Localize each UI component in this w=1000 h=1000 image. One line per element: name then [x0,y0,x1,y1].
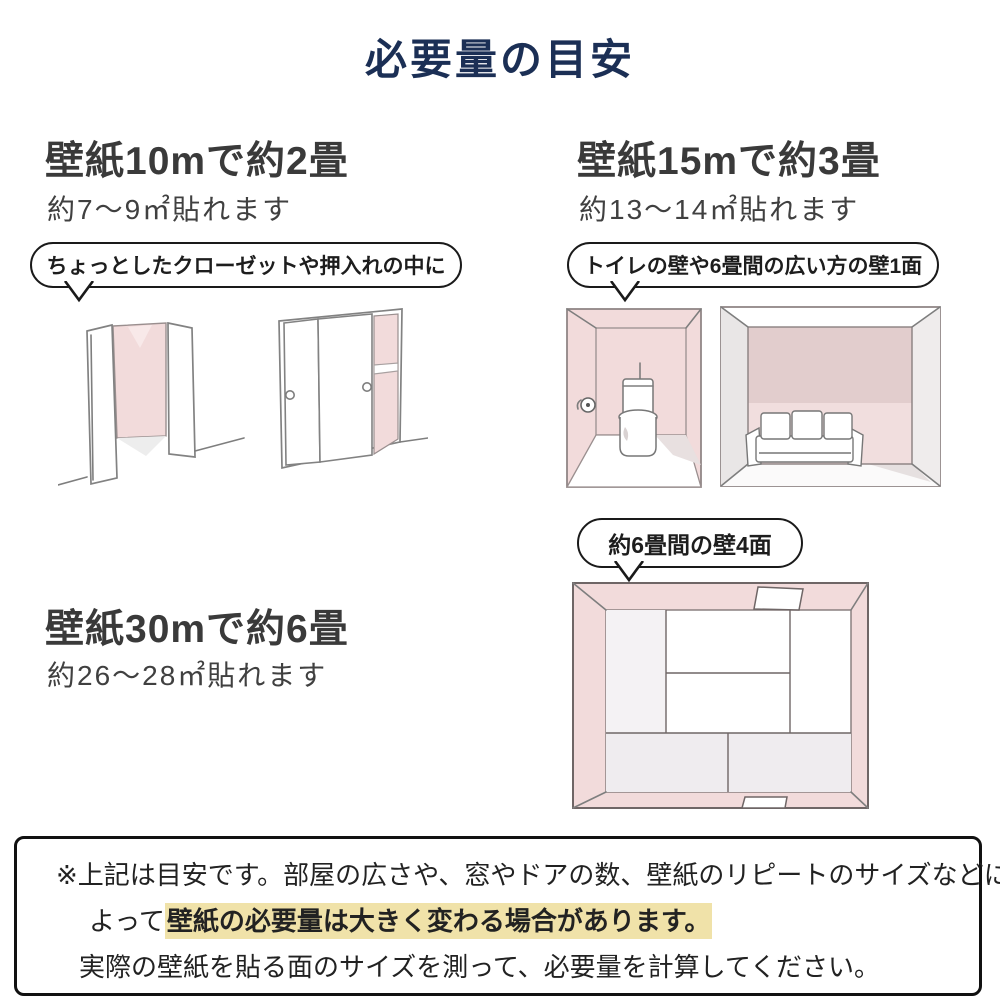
speech-bubble-room4: 約6畳間の壁4面 [577,518,803,568]
notice-line-2: よって壁紙の必要量は大きく変わる場合があります。 [56,898,949,944]
notice-line-3: 実際の壁紙を貼る面のサイズを測って、必要量を計算してください。 [56,944,949,990]
speech-bubble-closet-label: ちょっとしたクローゼットや押入れの中に [47,250,446,280]
page-title: 必要量の目安 [0,26,1000,87]
notice-line-1: ※上記は目安です。部屋の広さや、窓やドアの数、壁紙のリピートのサイズなどに [56,852,949,898]
wallpaper-quantity-guide: 必要量の目安 壁紙10mで約2畳 約7〜9㎡貼れます 壁紙15mで約3畳 約13… [0,0,1000,1000]
subtext-10m: 約7〜9㎡貼れます [47,188,292,228]
tatami-room-illustration [570,580,874,815]
notice-box: ※上記は目安です。部屋の広さや、窓やドアの数、壁紙のリピートのサイズなどに よっ… [14,836,982,996]
sliding-closet-illustration [248,303,428,485]
sofa-room-illustration [718,303,946,493]
heading-30m: 壁紙30mで約6畳 [45,598,349,654]
speech-bubble-tail [62,281,98,305]
open-closet-illustration [58,308,253,493]
heading-15m: 壁紙15mで約3畳 [577,130,881,186]
speech-bubble-room4-label: 約6畳間の壁4面 [608,526,772,560]
speech-bubble-tail [608,281,644,305]
speech-bubble-tail [612,561,648,585]
speech-bubble-toilet-label: トイレの壁や6畳間の広い方の壁1面 [584,250,922,280]
notice-line-2-prefix: よって [89,906,165,936]
subtext-15m: 約13〜14㎡貼れます [579,188,859,228]
subtext-30m: 約26〜28㎡貼れます [47,654,327,694]
toilet-room-illustration [563,303,705,493]
notice-highlight: 壁紙の必要量は大きく変わる場合があります。 [165,903,712,939]
heading-10m: 壁紙10mで約2畳 [45,130,349,186]
